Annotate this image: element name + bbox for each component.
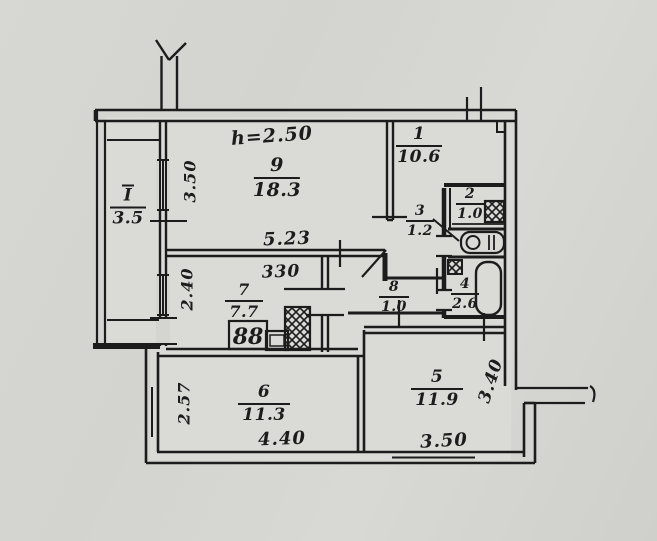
room-area: 11.3 [242, 407, 285, 424]
room-label-4: 4 2.6 [451, 277, 479, 311]
room-number: 5 [431, 369, 443, 386]
vent-shaft-bath [448, 260, 462, 274]
room-area: 1.0 [457, 207, 483, 221]
room-number: 1 [413, 126, 425, 143]
floor-plan-page: 88 I 3.5 9 18.3 [0, 0, 657, 541]
dim-kitchen-depth: 2.40 [178, 268, 197, 311]
room-number: 3 [415, 204, 425, 218]
vent-shaft-kitchen [285, 307, 310, 350]
stove-icon: 88 [229, 321, 267, 350]
room-label-8: 8 1.0 [379, 280, 409, 314]
room-number: 2 [465, 187, 475, 201]
room-number: 8 [389, 280, 399, 294]
room-area: 10.6 [397, 149, 440, 166]
room-number: 7 [238, 282, 250, 298]
room-area: 18.3 [253, 181, 301, 200]
room-label-5: 5 11.9 [411, 369, 463, 409]
room-label-9: 9 18.3 [253, 156, 301, 200]
room-area: 1.0 [381, 300, 407, 314]
room-area: 2.6 [452, 297, 478, 311]
room-label-6: 6 11.3 [238, 384, 290, 424]
room-label-3: 3 1.2 [406, 204, 434, 238]
room-number: 4 [460, 277, 470, 291]
room-number: 9 [270, 156, 284, 175]
room-area: 1.2 [407, 224, 433, 238]
room-label-2: 2 1.0 [456, 187, 484, 221]
room-label-1: 1 10.6 [396, 126, 442, 166]
room-label-7: 7 7.7 [225, 282, 263, 320]
room-area: 7.7 [229, 304, 258, 320]
dim-corridor-width: 330 [261, 261, 300, 282]
room-area: 3.5 [112, 211, 143, 228]
stove-burners-glyph: 88 [232, 324, 264, 350]
vent-shaft-room2 [485, 201, 504, 222]
dim-room9-depth: 3.50 [181, 160, 200, 203]
room-number: 6 [258, 384, 270, 401]
room-area: 11.9 [415, 392, 458, 409]
room-number: I [122, 185, 134, 205]
dim-room5-width: 3.50 [420, 429, 469, 452]
dim-room6-depth: 2.57 [175, 382, 194, 425]
dim-room6-width: 4.40 [258, 428, 307, 451]
dim-room9-width: 5.23 [263, 228, 312, 251]
room-label-balcony: I 3.5 [110, 185, 146, 228]
floor-plan-drawing: 88 [0, 0, 657, 541]
